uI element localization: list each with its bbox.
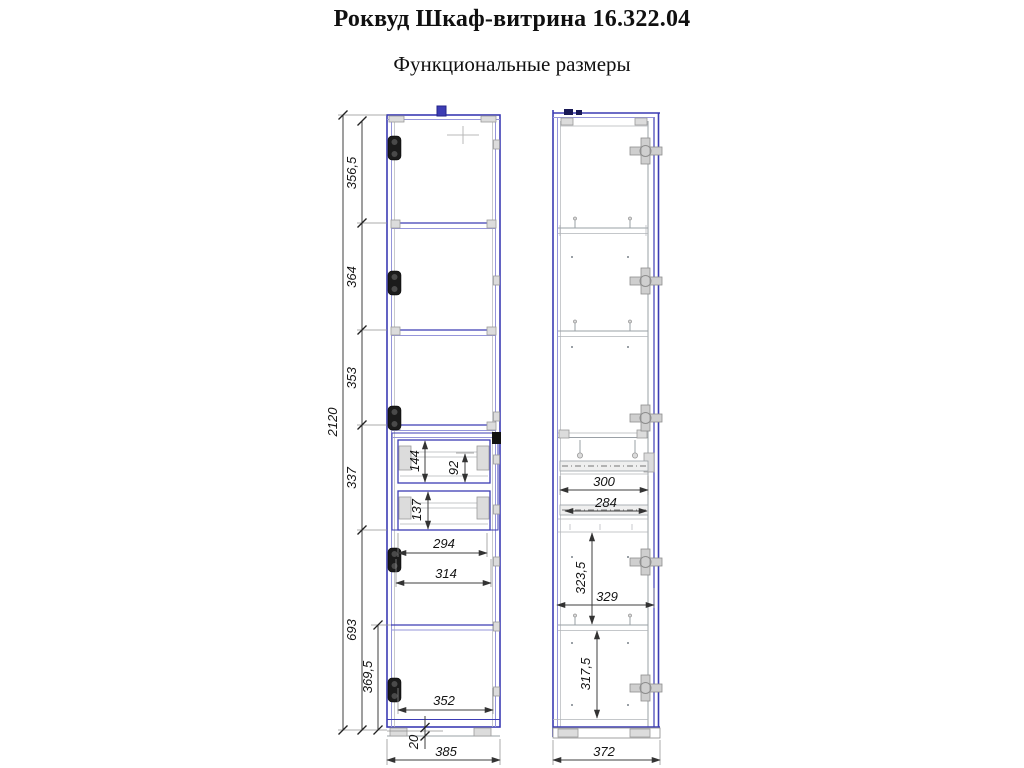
front-view: 2120 356,5 364 353 337 693 369,5 144 92 …: [325, 106, 501, 765]
dim-front-bottom-section: 693: [344, 618, 359, 640]
hinge-cross-icon: [630, 138, 662, 164]
dim-side-lower-compartment-height: 317,5: [578, 657, 593, 690]
dim-front-upper-drawer-inner-height: 92: [446, 460, 461, 475]
dim-front-total-height: 2120: [325, 407, 340, 438]
dim-front-drawer-opening-width: 314: [435, 566, 457, 581]
side-right-foot: [630, 729, 650, 737]
dim-front-lower-drawer-height: 137: [409, 498, 424, 520]
hinge-cross-icon: [630, 405, 662, 431]
side-wall-bracket: [564, 109, 573, 115]
dim-front-upper-drawer-height: 144: [407, 450, 422, 472]
hinge-icon: [388, 548, 401, 572]
side-dimensions: 300 284 323,5 329 317,5 372: [553, 474, 660, 765]
dim-side-upper-compartment-height: 323,5: [573, 561, 588, 594]
dim-front-third-section: 353: [344, 366, 359, 388]
wall-bracket: [437, 106, 446, 116]
front-left-foot: [390, 728, 407, 736]
hinge-cross-icon: [630, 549, 662, 575]
dim-front-drawer-section: 337: [344, 466, 359, 488]
technical-drawing-canvas: 2120 356,5 364 353 337 693 369,5 144 92 …: [0, 0, 1024, 768]
hinge-cross-icon: [630, 675, 662, 701]
hinge-icon: [388, 136, 401, 160]
dim-front-top-section: 356,5: [344, 156, 359, 189]
dim-front-second-section: 364: [344, 266, 359, 288]
side-left-foot: [558, 729, 578, 737]
hinge-icon: [388, 271, 401, 295]
side-hinges: [630, 138, 662, 701]
hinge-icon: [388, 678, 401, 702]
drawing-page: Роквуд Шкаф-витрина 16.322.04 Функционал…: [0, 0, 1024, 768]
front-right-foot: [474, 728, 491, 736]
front-cabinet-body: [387, 106, 500, 736]
hinge-cross-icon: [630, 268, 662, 294]
dim-front-bottom-inner-height: 369,5: [360, 660, 375, 693]
dim-front-bottom-inner-width: 352: [433, 693, 455, 708]
center-mark-icon: [447, 126, 479, 144]
hinge-icon: [388, 406, 401, 430]
front-lock-block: [492, 432, 501, 444]
dim-front-drawer-inner-width: 294: [432, 536, 455, 551]
dim-side-inner-depth: 329: [596, 589, 618, 604]
dim-side-slide-inner-length: 284: [594, 495, 617, 510]
dim-side-overall-depth: 372: [593, 744, 615, 759]
dim-side-slide-length: 300: [593, 474, 615, 489]
dim-front-plinth-height: 20: [406, 734, 421, 750]
side-view: 300 284 323,5 329 317,5 372: [553, 109, 662, 765]
dim-front-overall-width: 385: [435, 744, 457, 759]
